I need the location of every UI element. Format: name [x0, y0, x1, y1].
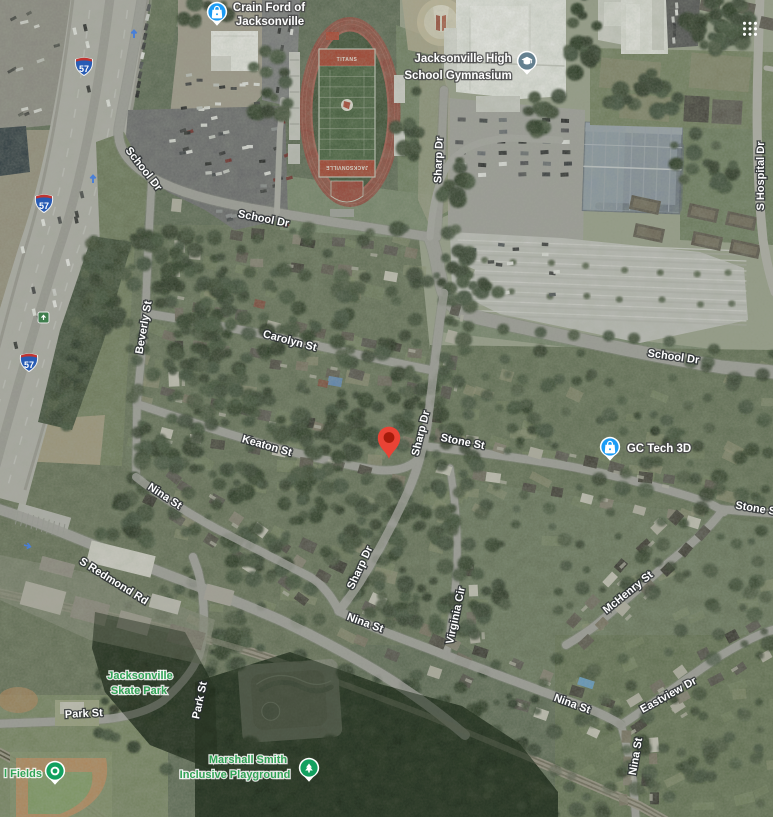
- svg-text:Inclusive Playground: Inclusive Playground: [180, 769, 291, 781]
- svg-text:Jacksonville High: Jacksonville High: [414, 53, 511, 65]
- svg-text:Sharp Dr: Sharp Dr: [432, 136, 446, 184]
- svg-text:Jacksonville: Jacksonville: [107, 670, 172, 682]
- svg-text:57: 57: [24, 360, 34, 370]
- svg-text:Park St: Park St: [65, 707, 104, 721]
- svg-text:GC Tech 3D: GC Tech 3D: [627, 443, 691, 455]
- svg-text:57: 57: [79, 64, 89, 74]
- svg-text:57: 57: [39, 201, 49, 211]
- svg-text:Jacksonville: Jacksonville: [236, 16, 304, 28]
- svg-text:Crain Ford of: Crain Ford of: [233, 2, 305, 14]
- svg-text:School Gymnasium: School Gymnasium: [404, 70, 511, 82]
- svg-text:Skate Park: Skate Park: [111, 685, 168, 697]
- svg-text:l Fields: l Fields: [4, 768, 42, 780]
- svg-text:S Hospital Dr: S Hospital Dr: [755, 141, 767, 211]
- svg-text:Marshall Smith: Marshall Smith: [209, 754, 288, 766]
